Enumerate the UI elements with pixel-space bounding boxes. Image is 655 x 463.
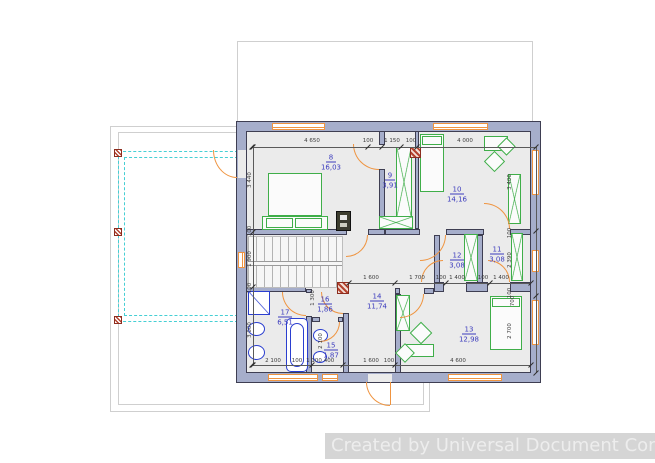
room-label-10: 1014,16 <box>437 177 477 204</box>
door-gap <box>368 374 392 382</box>
room-area: 1,87 <box>311 352 351 360</box>
room-label-11: 113,08 <box>477 237 517 264</box>
room-number: 8 <box>326 154 336 163</box>
dimension-label: 1 900 <box>247 251 253 267</box>
dimension-label: 1 700 <box>409 275 425 281</box>
room-label-8: 816,03 <box>311 145 351 172</box>
room-area: 3,08 <box>477 256 517 264</box>
room-area: 12,98 <box>449 336 489 344</box>
room-number: 9 <box>385 172 395 181</box>
room-label-15: 151,87 <box>311 333 351 360</box>
bed-icon <box>268 173 322 216</box>
window <box>272 123 325 130</box>
dimension-label: 4 000 <box>457 138 473 144</box>
door-leaf <box>390 382 391 405</box>
dimension-label: 2 700 <box>507 323 513 339</box>
room-number: 13 <box>462 326 477 335</box>
window <box>448 374 502 381</box>
window <box>238 252 245 268</box>
dimension-label: 1 400 <box>449 275 465 281</box>
room-label-17: 176,51 <box>265 300 305 327</box>
dimension-label: 2 100 <box>265 358 281 364</box>
dimension-label: 3 440 <box>247 172 253 188</box>
wall-segment <box>385 229 420 235</box>
dimension-label: 1 150 <box>384 138 400 144</box>
room-area: 16,03 <box>311 164 351 172</box>
dimension-label: 100 <box>292 358 303 364</box>
window <box>322 374 338 381</box>
door-gap <box>238 150 246 178</box>
room-label-12: 123,08 <box>437 243 477 270</box>
dimension-label: 3 000 <box>247 322 253 338</box>
chimney-shaft-icon <box>336 211 351 231</box>
dimension-label: 700 <box>510 296 516 307</box>
dimension-line <box>536 147 537 373</box>
room-number: 11 <box>490 246 505 255</box>
floor-plan-page: 4 6501001 1501004 0003 4401001 9001003 0… <box>0 0 655 463</box>
watermark-text: Created by Universal Document Converter <box>331 435 655 456</box>
window <box>433 123 488 130</box>
dimension-label: 4 600 <box>450 358 466 364</box>
terrace-post <box>114 316 122 324</box>
bidet-icon <box>248 345 265 360</box>
room-area: 3,08 <box>437 262 477 270</box>
dimension-label: 100 <box>478 275 489 281</box>
staircase <box>247 236 343 288</box>
room-number: 16 <box>318 296 333 305</box>
pillow-icon <box>266 218 293 228</box>
dimension-label: 100 <box>247 283 253 294</box>
room-area: 1,86 <box>305 306 345 314</box>
wardrobe-icon <box>379 216 413 229</box>
room-area: 6,51 <box>265 319 305 327</box>
room-label-16: 161,86 <box>305 287 345 314</box>
dimension-label: 100 <box>436 275 447 281</box>
window <box>268 374 318 381</box>
room-number: 12 <box>450 252 465 261</box>
room-number: 15 <box>324 342 339 351</box>
dimension-label: 4 650 <box>304 138 320 144</box>
pillow-icon <box>295 218 322 228</box>
room-label-9: 93,91 <box>370 163 410 190</box>
wall-segment <box>424 288 434 294</box>
room-label-13: 1312,98 <box>449 317 489 344</box>
room-area: 3,91 <box>370 182 410 190</box>
watermark-banner: Created by Universal Document Converter <box>325 433 655 459</box>
dimension-label: 1 400 <box>493 275 509 281</box>
wall-segment <box>368 229 385 235</box>
dimension-label: 100 <box>363 138 374 144</box>
dimension-line <box>252 147 536 148</box>
dimension-label: 1 600 <box>363 275 379 281</box>
terrace-post <box>114 228 122 236</box>
floor-plan-drawing: 4 6501001 1501004 0003 4401001 9001003 0… <box>0 0 655 463</box>
room-label-14: 1411,74 <box>357 284 397 311</box>
room-number: 14 <box>370 293 385 302</box>
wall-segment <box>312 317 320 322</box>
room-area: 11,74 <box>357 303 397 311</box>
dimension-label: 1 600 <box>363 358 379 364</box>
room-number: 10 <box>450 186 465 195</box>
dimension-label: 100 <box>406 138 417 144</box>
dimension-label: 100 <box>384 358 395 364</box>
dimension-line <box>253 147 254 365</box>
pillow-icon <box>422 136 442 145</box>
dimension-label: 100 <box>247 226 253 237</box>
terrace-post <box>114 149 122 157</box>
outline-rect <box>237 41 533 122</box>
terrace-dashed-rect <box>124 157 238 316</box>
room-area: 14,16 <box>437 196 477 204</box>
dimension-label: 3 400 <box>507 174 513 190</box>
room-number: 17 <box>278 309 293 318</box>
